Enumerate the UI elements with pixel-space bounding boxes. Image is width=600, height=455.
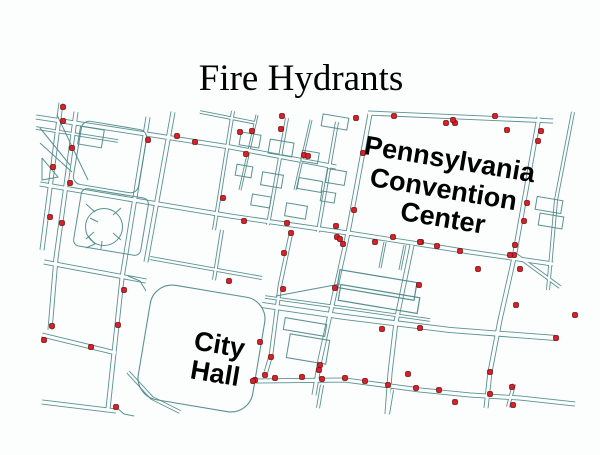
svg-text:Fire Hydrants: Fire Hydrants xyxy=(199,58,404,99)
